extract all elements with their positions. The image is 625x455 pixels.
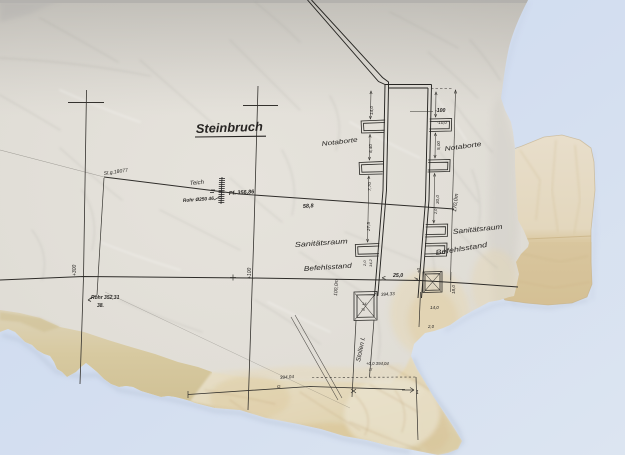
svg-text:394,33: 394,33	[381, 291, 396, 297]
svg-text:27,5: 27,5	[366, 222, 371, 232]
svg-text:6,40: 6,40	[368, 144, 373, 153]
svg-text:14,0: 14,0	[369, 106, 374, 115]
svg-text:2,0: 2,0	[427, 324, 435, 329]
svg-text:+0,0 394,04: +0,0 394,04	[366, 361, 389, 366]
svg-text:30,0: 30,0	[435, 195, 440, 204]
svg-text:5,00: 5,00	[436, 141, 441, 150]
svg-text:Teich: Teich	[190, 180, 205, 187]
svg-text:+300: +300	[72, 265, 78, 276]
svg-text:14,2: 14,2	[368, 258, 373, 267]
svg-text:+100: +100	[247, 268, 253, 279]
svg-text:Rohr 352,31: Rohr 352,31	[91, 295, 120, 301]
svg-text:G: G	[277, 384, 281, 389]
svg-text:100,0m: 100,0m	[333, 279, 340, 296]
svg-text:2,0: 2,0	[362, 260, 367, 267]
svg-text:394,04: 394,04	[280, 374, 295, 380]
svg-text:1: 1	[416, 390, 419, 396]
svg-text:38.: 38.	[97, 303, 104, 309]
svg-text:14: 14	[362, 301, 367, 306]
svg-text:75: 75	[361, 308, 365, 312]
svg-text:Steinbruch: Steinbruch	[196, 120, 264, 136]
svg-text:25,0: 25,0	[392, 273, 403, 279]
svg-text:14,0: 14,0	[430, 305, 439, 310]
svg-text:±0: ±0	[416, 267, 421, 273]
svg-text:-100: -100	[435, 108, 445, 114]
svg-text:18,0: 18,0	[451, 285, 456, 294]
svg-text:7,70: 7,70	[367, 182, 372, 191]
svg-text:-10,0: -10,0	[437, 120, 447, 125]
svg-text:58,8: 58,8	[303, 203, 315, 210]
svg-text:2,0: 2,0	[434, 208, 438, 215]
